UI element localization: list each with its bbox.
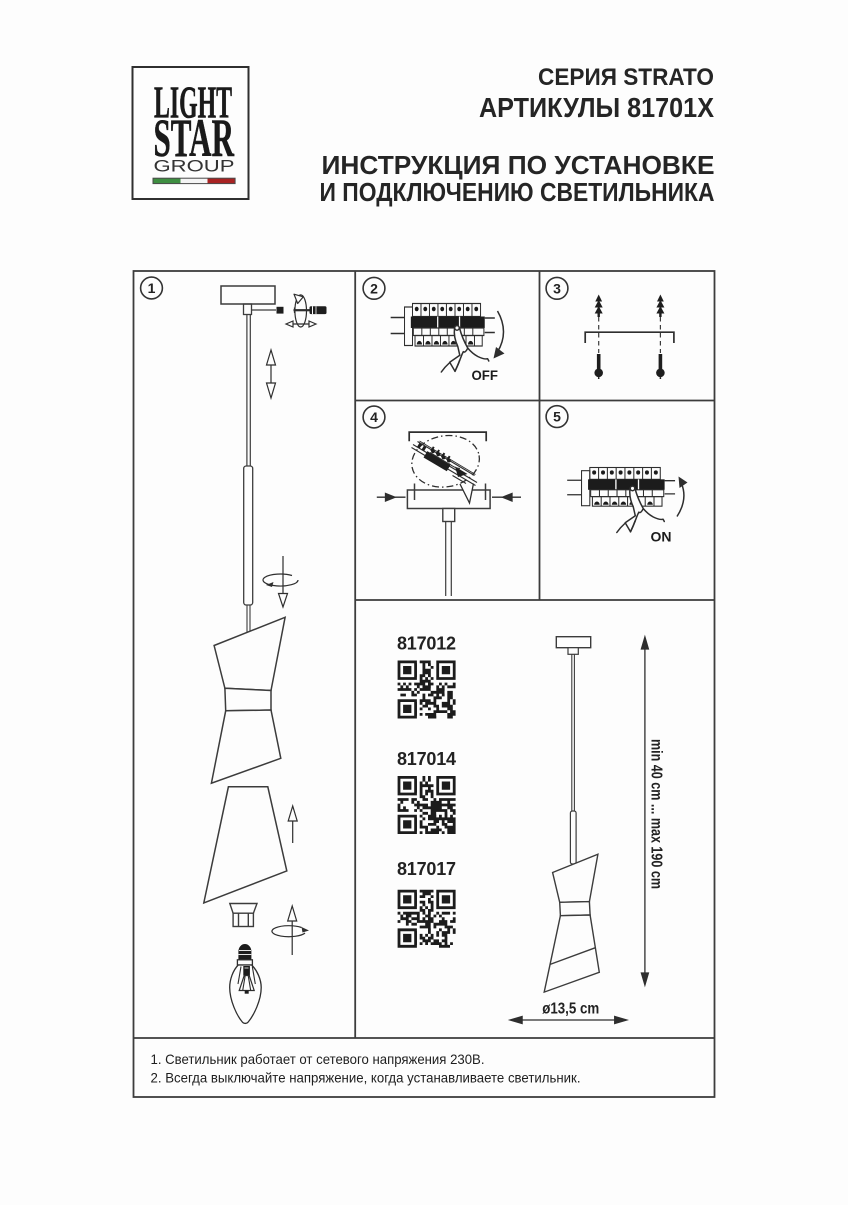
- svg-text:min 40 cm ... max 190 cm: min 40 cm ... max 190 cm: [648, 739, 665, 889]
- svg-text:GROUP: GROUP: [154, 156, 235, 175]
- svg-text:АРТИКУЛЫ 81701X: АРТИКУЛЫ 81701X: [479, 92, 714, 123]
- svg-text:И ПОДКЛЮЧЕНИЮ СВЕТИЛЬНИКА: И ПОДКЛЮЧЕНИЮ СВЕТИЛЬНИКА: [320, 177, 715, 207]
- svg-text:817012: 817012: [397, 634, 456, 654]
- svg-text:OFF: OFF: [472, 368, 499, 383]
- svg-text:3: 3: [553, 280, 561, 296]
- svg-text:ИНСТРУКЦИЯ ПО УСТАНОВКЕ: ИНСТРУКЦИЯ ПО УСТАНОВКЕ: [322, 150, 715, 180]
- svg-text:5: 5: [553, 409, 561, 425]
- svg-text:817017: 817017: [397, 859, 456, 879]
- svg-text:2: 2: [370, 280, 378, 296]
- svg-text:ø13,5 cm: ø13,5 cm: [542, 1001, 599, 1018]
- svg-text:СЕРИЯ STRATO: СЕРИЯ STRATO: [538, 64, 714, 91]
- svg-text:1: 1: [148, 280, 156, 296]
- svg-text:4: 4: [370, 409, 378, 425]
- svg-text:ON: ON: [651, 530, 672, 545]
- svg-text:2. Всегда выключайте напряжени: 2. Всегда выключайте напряжение, когда у…: [151, 1070, 581, 1086]
- svg-text:1. Светильник работает от сете: 1. Светильник работает от сетевого напря…: [151, 1051, 485, 1067]
- svg-text:817014: 817014: [397, 749, 456, 769]
